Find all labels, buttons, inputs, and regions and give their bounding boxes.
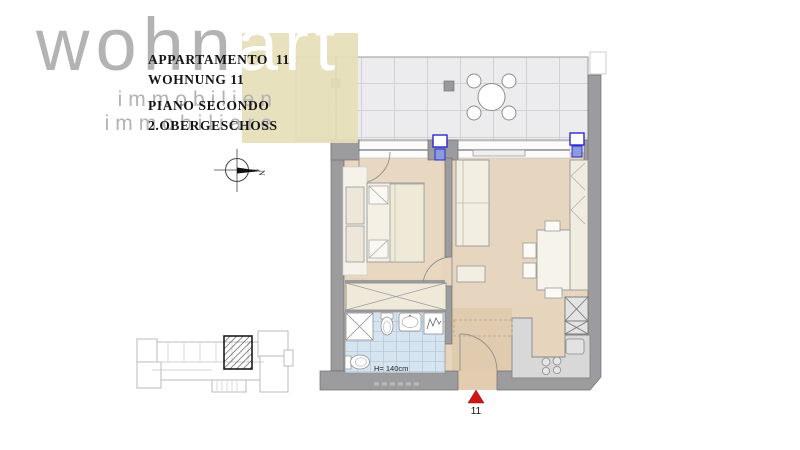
key-plan [137, 331, 293, 392]
glazing [359, 141, 570, 158]
nightstand [346, 226, 364, 262]
partition-bedroom-living [445, 158, 452, 257]
unit-title-german: WOHNUNG 11 [148, 70, 290, 90]
shower [346, 313, 373, 340]
hall-floor [452, 308, 512, 371]
top-wall-pier [331, 140, 359, 160]
bottom-wall-left [320, 371, 458, 390]
bathroom-height-label: H= 140cm [374, 364, 408, 373]
unit-info-block: APPARTAMENTO 11 WOHNUNG 11 PIANO SECONDO… [148, 50, 290, 136]
closet [346, 283, 446, 310]
round-table [478, 84, 505, 111]
unit-floor-german: 2.OBERGESCHOSS [148, 116, 290, 136]
unit-title-italian: APPARTAMENTO 11 [148, 50, 290, 70]
window-marker [433, 135, 447, 160]
nightstand [346, 187, 364, 224]
page: H= 140cm [0, 0, 800, 450]
toilet [345, 355, 370, 369]
north-compass-icon: N [214, 149, 266, 192]
dining-table [537, 230, 570, 290]
left-wall [331, 140, 344, 371]
unit-floor-italian: PIANO SECONDO [148, 96, 290, 116]
unit-number-label: 11 [471, 406, 482, 417]
entrance-triangle-icon [468, 390, 484, 403]
sink [399, 313, 421, 331]
bathroom: H= 140cm [345, 312, 445, 384]
north-label: N [257, 170, 266, 176]
washing-machine [424, 313, 443, 334]
radiator [473, 150, 525, 156]
window-marker [570, 133, 584, 157]
entrance-marker: 11 [468, 390, 484, 417]
bedroom-furniture [343, 167, 424, 275]
terrace-post [444, 81, 454, 91]
terrace-corner-notch [590, 52, 606, 74]
kitchen-sink [566, 339, 584, 354]
wardrobe [570, 160, 588, 290]
closet-wall [345, 280, 445, 283]
bidet [381, 313, 393, 335]
ottoman [457, 266, 485, 282]
tall-appliance-cabinet [565, 297, 588, 334]
highlighted-unit [224, 336, 252, 369]
entry-threshold [458, 371, 497, 390]
